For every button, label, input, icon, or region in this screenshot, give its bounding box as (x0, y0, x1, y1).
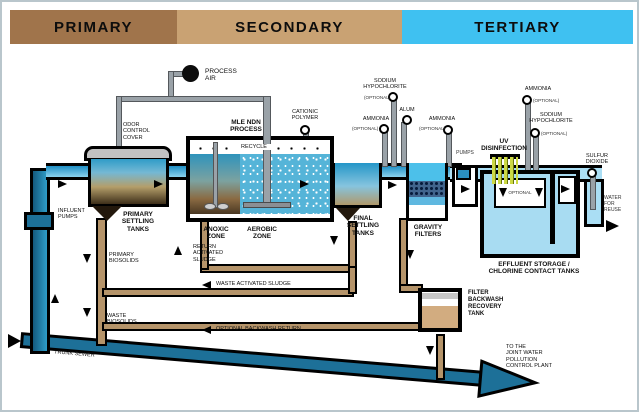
process-air-label: PROCESS AIR (205, 68, 245, 83)
backwash-recovery-tank (418, 288, 462, 332)
chemical-injector-icon (402, 115, 412, 125)
recovery-tank-lid (422, 293, 458, 299)
flow-arrow-right-icon (300, 180, 309, 188)
optional-tag: (OPTIONAL) (533, 98, 559, 103)
mixer-icon (213, 142, 218, 208)
process-air-pipe (116, 96, 271, 102)
flow-arrow-right-icon (561, 185, 570, 193)
odor-control-cover-label: ODOR CONTROL COVER (123, 122, 163, 141)
reuse-flow-arrow-icon (606, 220, 619, 232)
chemical-injector-icon (379, 124, 389, 134)
waste-activated-sludge-label: WASTE ACTIVATED SLUDGE (216, 281, 326, 287)
odor-control-air-pipe (116, 96, 122, 150)
alum-label: ALUM (394, 107, 420, 113)
flow-arrow-down-icon (499, 188, 507, 197)
flow-arrow-right-icon (461, 185, 470, 193)
influent-riser-pipe (30, 168, 50, 354)
ammonia-pipe (382, 131, 388, 167)
optional-label: OPTIONAL (504, 190, 536, 195)
sulfur-dioxide-pipe (590, 176, 596, 210)
recycle-label: RECYCLE (234, 144, 274, 150)
aerobic-zone-label: AEROBIC ZONE (242, 226, 282, 241)
chemical-injector-icon (300, 125, 310, 135)
sodium-hypochlorite-pipe (533, 136, 539, 172)
header-tertiary: TERTIARY (402, 10, 633, 44)
tank-baffle (550, 174, 555, 244)
chemical-injector-icon (522, 95, 532, 105)
uv-disinfection-label: UV DISINFECTION (478, 138, 530, 153)
effluent-storage-label: EFFLUENT STORAGE / CHLORINE CONTACT TANK… (472, 261, 596, 276)
sewer-inlet-arrow-icon (8, 334, 21, 348)
final-settling-tank (332, 163, 382, 208)
flow-arrow-right-icon (58, 180, 67, 188)
water-for-reuse-label: WATER FOR REUSE (604, 196, 634, 213)
ammonia-label: AMMONIA (424, 116, 460, 122)
flow-arrow-down-icon (426, 346, 434, 355)
flow-arrow-up-icon (174, 246, 182, 255)
sodium-hypochlorite-label: SODIUM HYPOCHLORITE (362, 78, 408, 91)
sulfur-dioxide-label: SULFUR DIOXIDE (580, 153, 614, 166)
return-activated-sludge-label: RETURN ACTIVATED SLUDGE (193, 244, 235, 263)
optional-tag: (OPTIONAL) (419, 126, 445, 131)
header-primary-label: PRIMARY (54, 19, 133, 36)
flow-arrow-right-icon (154, 180, 163, 188)
header-secondary-label: SECONDARY (235, 19, 344, 36)
flow-arrow-down-icon (535, 188, 543, 197)
gravity-filter-tank (406, 163, 448, 221)
pumps-label: PUMPS (450, 151, 480, 157)
optional-tag: (OPTIONAL) (352, 126, 378, 131)
flow-arrow-down-icon (83, 254, 91, 263)
air-diffuser-icon (243, 202, 291, 208)
header-secondary: SECONDARY (177, 10, 402, 44)
sodium-hypochlorite-label: SODIUM HYPOCHLORITE (528, 112, 574, 125)
header-primary: PRIMARY (10, 10, 177, 44)
ras-pipe-horizontal (200, 264, 354, 273)
filter-media (409, 181, 445, 197)
ammonia-pipe (446, 132, 452, 167)
anoxic-zone-label: ANOXIC ZONE (198, 226, 234, 241)
filter-backwash-recovery-label: FILTER BACKWASH RECOVERY TANK (468, 290, 512, 318)
filter-water (409, 163, 445, 181)
uv-lamps-icon (492, 157, 518, 184)
cationic-polymer-label: CATIONIC POLYMER (286, 109, 324, 122)
flow-arrow-down-icon (330, 236, 338, 245)
mle-ndn-process-label: MLE NDN PROCESS (220, 119, 272, 134)
recovery-tank-outlet-pipe (436, 334, 445, 380)
main-channel-segment (46, 163, 94, 180)
backwash-flow-arrow-icon (202, 326, 211, 334)
optional-tag: (OPTIONAL) (541, 131, 567, 136)
primary-settling-tanks-label: PRIMARY SETTLING TANKS (112, 211, 164, 233)
flow-arrow-right-icon (388, 181, 397, 189)
gravity-filters-label: GRAVITY FILTERS (406, 224, 450, 239)
flow-arrow-down-icon (83, 308, 91, 317)
treatment-plant-diagram: PRIMARY SECONDARY TERTIARY TRUNK SEWER I… (0, 0, 639, 412)
influent-pumps-label: INFLUENT PUMPS (58, 208, 98, 221)
to-joint-plant-label: TO THE JOINT WATER POLLUTION CONTROL PLA… (506, 344, 566, 369)
ammonia-label: AMMONIA (520, 86, 556, 92)
pump-icon (456, 168, 471, 180)
flow-arrow-up-icon (51, 294, 59, 303)
chemical-injector-icon (587, 168, 597, 178)
flow-arrow-down-icon (406, 250, 414, 259)
filter-underdrain (409, 197, 445, 205)
header-tertiary-label: TERTIARY (474, 19, 560, 36)
primary-biosolids-label: PRIMARY BIOSOLIDS (109, 252, 147, 265)
alum-pipe (401, 122, 407, 167)
waste-biosolids-label: WASTE BIOSOLIDS (107, 313, 143, 326)
optional-backwash-return-label: OPTIONAL BACKWASH RETURN (216, 326, 336, 332)
chemical-injector-icon (530, 128, 540, 138)
process-air-blower-icon (182, 65, 199, 82)
recovery-tank-water (422, 306, 458, 328)
influent-pump-icon (24, 212, 54, 230)
ammonia-label: AMMONIA (358, 116, 394, 122)
mixer-paddle-icon (217, 203, 229, 210)
was-flow-arrow-icon (202, 281, 211, 289)
final-settling-tanks-label: FINAL SETTLING TANKS (340, 215, 386, 237)
was-pipe-horizontal (102, 288, 354, 297)
was-pipe-connector (348, 266, 357, 294)
mixer-paddle-icon (204, 203, 216, 210)
optional-tag: (OPTIONAL) (364, 95, 390, 100)
